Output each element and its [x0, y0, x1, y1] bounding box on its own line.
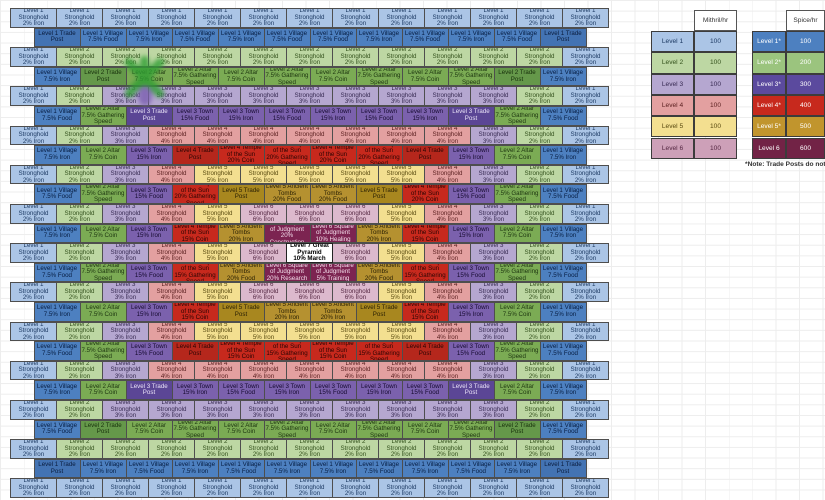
cell-sh4[interactable]: Level 4 Stronghold4% Iron — [378, 126, 425, 146]
cell-sh1[interactable]: Level 1 Stronghold2% Iron — [240, 478, 287, 498]
cell-sh4[interactable]: Level 4 Stronghold4% Iron — [424, 165, 471, 185]
cell-vf[interactable]: Level 1 Village7.5% Food — [540, 106, 587, 126]
cell-tp4[interactable]: Level 4 Trade Post — [172, 145, 219, 165]
cell-vi[interactable]: Level 1 Village7.5% Iron — [540, 302, 587, 322]
cell-sh3[interactable]: Level 3 Stronghold3% Iron — [378, 86, 425, 106]
cell-sh3[interactable]: Level 3 Stronghold3% Iron — [102, 165, 149, 185]
cell-tf[interactable]: Level 3 Town15% Food — [126, 263, 173, 283]
cell-sh2[interactable]: Level 2 Stronghold2% Iron — [516, 322, 563, 342]
cell-ti[interactable]: Level 3 Town15% Iron — [310, 106, 357, 126]
cell-sh3[interactable]: Level 3 Stronghold3% Iron — [470, 282, 517, 302]
legend-value-cell[interactable]: 100 — [694, 74, 737, 95]
cell-sh1[interactable]: Level 1 Stronghold2% Iron — [10, 47, 57, 67]
legend-level-cell[interactable]: Level 1* — [752, 31, 786, 52]
cell-sh1[interactable]: Level 1 Stronghold2% Iron — [516, 8, 563, 28]
cell-tp3[interactable]: Level 3 Trade Post — [126, 106, 173, 126]
cell-sh1[interactable]: Level 1 Stronghold2% Iron — [378, 8, 425, 28]
cell-vf[interactable]: Level 1 Village7.5% Food — [218, 459, 265, 479]
cell-ag[interactable]: Level 2 Altar7.5% Gathering Speed — [356, 420, 403, 440]
legend-level-cell[interactable]: Level 6 — [651, 138, 694, 159]
cell-sh5[interactable]: Level 5 Stronghold5% Iron — [194, 204, 241, 224]
cell-sh2[interactable]: Level 2 Stronghold2% Iron — [516, 47, 563, 67]
cell-sh4[interactable]: Level 4 Stronghold4% Iron — [194, 126, 241, 146]
cell-sh3[interactable]: Level 3 Stronghold3% Iron — [286, 400, 333, 420]
cell-sh2[interactable]: Level 2 Stronghold2% Iron — [194, 47, 241, 67]
cell-tp1[interactable]: Level 1 Trade Post — [34, 459, 81, 479]
cell-sh5[interactable]: Level 5 Stronghold5% Iron — [194, 165, 241, 185]
cell-sh1[interactable]: Level 1 Stronghold2% Iron — [10, 439, 57, 459]
cell-sh2[interactable]: Level 2 Stronghold2% Iron — [516, 400, 563, 420]
cell-sh4[interactable]: Level 4 Stronghold4% Iron — [424, 204, 471, 224]
cell-tof[interactable]: Level 5 Ancient Tombs20% Food — [264, 184, 311, 204]
cell-sh3[interactable]: Level 3 Stronghold3% Iron — [470, 322, 517, 342]
cell-ti[interactable]: Level 3 Town15% Iron — [126, 224, 173, 244]
cell-sh4[interactable]: Level 4 Stronghold4% Iron — [194, 361, 241, 381]
cell-ac[interactable]: Level 2 Altar7.5% Coin — [494, 302, 541, 322]
cell-sh1[interactable]: Level 1 Stronghold2% Iron — [562, 204, 609, 224]
cell-sh4[interactable]: Level 4 Stronghold4% Iron — [240, 126, 287, 146]
cell-vf[interactable]: Level 1 Village7.5% Food — [540, 341, 587, 361]
cell-sh4[interactable]: Level 4 Stronghold4% Iron — [148, 165, 195, 185]
cell-ag[interactable]: Level 2 Altar7.5% Gathering Speed — [80, 184, 127, 204]
cell-tg20[interactable]: Level 4 Temple of the Sun20% Gathering S… — [356, 145, 403, 165]
cell-tof[interactable]: Level 5 Ancient Tombs20% Food — [310, 184, 357, 204]
cell-sh1[interactable]: Level 1 Stronghold2% Iron — [10, 8, 57, 28]
cell-sh4[interactable]: Level 4 Stronghold4% Iron — [424, 322, 471, 342]
cell-tf[interactable]: Level 3 Town15% Food — [126, 341, 173, 361]
legend-level-cell[interactable]: Level 4* — [752, 95, 786, 116]
cell-sh2[interactable]: Level 2 Stronghold2% Iron — [378, 439, 425, 459]
cell-ag[interactable]: Level 2 Altar7.5% Gathering Speed — [494, 341, 541, 361]
cell-sh5[interactable]: Level 5 Stronghold5% Iron — [332, 165, 379, 185]
cell-vi[interactable]: Level 1 Village7.5% Iron — [540, 224, 587, 244]
cell-vi[interactable]: Level 1 Village7.5% Iron — [126, 28, 173, 48]
cell-ac[interactable]: Level 2 Altar7.5% Coin — [80, 145, 127, 165]
cell-vi[interactable]: Level 1 Village7.5% Iron — [448, 28, 495, 48]
cell-sh2[interactable]: Level 2 Stronghold2% Iron — [286, 439, 333, 459]
cell-sh3[interactable]: Level 3 Stronghold3% Iron — [470, 126, 517, 146]
cell-sh6[interactable]: Level 6 Stronghold6% Iron — [240, 243, 287, 263]
cell-ac[interactable]: Level 2 Altar7.5% Coin — [218, 67, 265, 87]
cell-sh3[interactable]: Level 3 Stronghold3% Iron — [102, 361, 149, 381]
cell-sjc[interactable]: Level 6 Square of Judgment20% Constructi… — [264, 224, 311, 244]
cell-tg20[interactable]: Level 4 Temple of the Sun20% Gathering S… — [264, 145, 311, 165]
cell-vi[interactable]: Level 1 Village7.5% Iron — [34, 380, 81, 400]
cell-vi[interactable]: Level 1 Village7.5% Iron — [34, 67, 81, 87]
cell-sh1[interactable]: Level 1 Stronghold2% Iron — [56, 8, 103, 28]
cell-sh6[interactable]: Level 6 Stronghold6% Iron — [240, 204, 287, 224]
cell-sh1[interactable]: Level 1 Stronghold2% Iron — [10, 400, 57, 420]
cell-sh5[interactable]: Level 5 Stronghold5% Iron — [378, 204, 425, 224]
cell-sh3[interactable]: Level 3 Stronghold3% Iron — [470, 165, 517, 185]
cell-sh6[interactable]: Level 6 Stronghold6% Iron — [332, 204, 379, 224]
cell-ac[interactable]: Level 2 Altar7.5% Coin — [218, 420, 265, 440]
cell-tf[interactable]: Level 3 Town15% Food — [448, 341, 495, 361]
cell-sh5[interactable]: Level 5 Stronghold5% Iron — [286, 165, 333, 185]
cell-sh6[interactable]: Level 6 Stronghold6% Iron — [286, 282, 333, 302]
cell-sh3[interactable]: Level 3 Stronghold3% Iron — [102, 243, 149, 263]
cell-vf[interactable]: Level 1 Village7.5% Food — [34, 106, 81, 126]
cell-sh1[interactable]: Level 1 Stronghold2% Iron — [194, 8, 241, 28]
cell-sh1[interactable]: Level 1 Stronghold2% Iron — [470, 8, 517, 28]
cell-sh2[interactable]: Level 2 Stronghold2% Iron — [56, 322, 103, 342]
cell-tp1[interactable]: Level 1 Trade Post — [540, 459, 587, 479]
cell-sh3[interactable]: Level 3 Stronghold3% Iron — [102, 204, 149, 224]
cell-sh1[interactable]: Level 1 Stronghold2% Iron — [332, 8, 379, 28]
cell-sh1[interactable]: Level 1 Stronghold2% Iron — [286, 8, 333, 28]
cell-sh4[interactable]: Level 4 Stronghold4% Iron — [424, 243, 471, 263]
cell-sh3[interactable]: Level 3 Stronghold3% Iron — [424, 86, 471, 106]
cell-tc20[interactable]: Level 4 Temple of the Sun20% Coin — [402, 184, 449, 204]
cell-ag[interactable]: Level 2 Altar7.5% Gathering Speed — [494, 184, 541, 204]
cell-sh4[interactable]: Level 4 Stronghold4% Iron — [424, 361, 471, 381]
cell-sh2[interactable]: Level 2 Stronghold2% Iron — [424, 439, 471, 459]
cell-sh2[interactable]: Level 2 Stronghold2% Iron — [102, 47, 149, 67]
cell-toi[interactable]: Level 5 Ancient Tombs20% Iron — [218, 224, 265, 244]
cell-sh2[interactable]: Level 2 Stronghold2% Iron — [332, 439, 379, 459]
cell-sh2[interactable]: Level 2 Stronghold2% Iron — [194, 439, 241, 459]
cell-sh2[interactable]: Level 2 Stronghold2% Iron — [240, 47, 287, 67]
cell-sh2[interactable]: Level 2 Stronghold2% Iron — [102, 439, 149, 459]
cell-sh4[interactable]: Level 4 Stronghold4% Iron — [240, 361, 287, 381]
cell-sh1[interactable]: Level 1 Stronghold2% Iron — [562, 322, 609, 342]
cell-toi[interactable]: Level 5 Ancient Tombs20% Iron — [310, 302, 357, 322]
legend-value-cell[interactable]: 100 — [694, 138, 737, 159]
cell-tc15[interactable]: Level 4 Temple of the Sun15% Coin — [402, 224, 449, 244]
legend-level-cell[interactable]: Level 1 — [651, 31, 694, 52]
cell-sh5[interactable]: Level 5 Stronghold5% Iron — [332, 322, 379, 342]
cell-sh1[interactable]: Level 1 Stronghold2% Iron — [10, 322, 57, 342]
cell-sh2[interactable]: Level 2 Stronghold2% Iron — [56, 165, 103, 185]
legend-value-cell[interactable]: 600 — [786, 138, 825, 159]
cell-tc15[interactable]: Level 4 Temple of the Sun15% Coin — [402, 302, 449, 322]
cell-sh1[interactable]: Level 1 Stronghold2% Iron — [102, 478, 149, 498]
cell-sh2[interactable]: Level 2 Stronghold2% Iron — [424, 47, 471, 67]
cell-tg15[interactable]: Level 4 Temple of the Sun15% Gathering S… — [356, 341, 403, 361]
cell-ag[interactable]: Level 2 Altar7.5% Gathering Speed — [356, 67, 403, 87]
cell-sh6[interactable]: Level 6 Stronghold6% Iron — [332, 243, 379, 263]
cell-sh2[interactable]: Level 2 Stronghold2% Iron — [148, 47, 195, 67]
cell-sh2[interactable]: Level 2 Stronghold2% Iron — [516, 243, 563, 263]
cell-ag[interactable]: Level 2 Altar7.5% Gathering Speed — [494, 263, 541, 283]
cell-sh5[interactable]: Level 5 Stronghold5% Iron — [240, 165, 287, 185]
cell-sh6[interactable]: Level 6 Stronghold6% Iron — [286, 204, 333, 224]
cell-sh3[interactable]: Level 3 Stronghold3% Iron — [240, 400, 287, 420]
cell-ac[interactable]: Level 2 Altar7.5% Coin — [126, 420, 173, 440]
cell-tc15[interactable]: Level 4 Temple of the Sun15% Coin — [310, 341, 357, 361]
cell-sh1[interactable]: Level 1 Stronghold2% Iron — [286, 478, 333, 498]
cell-sh2[interactable]: Level 2 Stronghold2% Iron — [516, 282, 563, 302]
cell-sh3[interactable]: Level 3 Stronghold3% Iron — [470, 400, 517, 420]
cell-ti[interactable]: Level 3 Town15% Iron — [448, 224, 495, 244]
legend-level-cell[interactable]: Level 3 — [651, 74, 694, 95]
cell-vf[interactable]: Level 1 Village7.5% Food — [34, 341, 81, 361]
cell-tg15[interactable]: Level 4 Temple of the Sun15% Gathering S… — [172, 263, 219, 283]
cell-sh1[interactable]: Level 1 Stronghold2% Iron — [562, 439, 609, 459]
legend-value-cell[interactable]: 300 — [786, 74, 825, 95]
cell-sh1[interactable]: Level 1 Stronghold2% Iron — [562, 282, 609, 302]
cell-ag[interactable]: Level 2 Altar7.5% Gathering Speed — [494, 106, 541, 126]
cell-sh1[interactable]: Level 1 Stronghold2% Iron — [424, 478, 471, 498]
cell-sh1[interactable]: Level 1 Stronghold2% Iron — [148, 478, 195, 498]
cell-sh1[interactable]: Level 1 Stronghold2% Iron — [10, 282, 57, 302]
cell-tp2[interactable]: Level 2 Trade Post — [494, 67, 541, 87]
cell-sh2[interactable]: Level 2 Stronghold2% Iron — [56, 126, 103, 146]
cell-tp3[interactable]: Level 3 Trade Post — [448, 106, 495, 126]
cell-toi[interactable]: Level 5 Ancient Tombs20% Iron — [356, 224, 403, 244]
cell-vf[interactable]: Level 1 Village7.5% Food — [80, 28, 127, 48]
cell-tg20[interactable]: Level 4 Temple of the Sun20% Gathering S… — [172, 184, 219, 204]
cell-sh5[interactable]: Level 5 Stronghold5% Iron — [240, 322, 287, 342]
cell-sh1[interactable]: Level 1 Stronghold2% Iron — [562, 86, 609, 106]
legend-level-cell[interactable]: Level 4 — [651, 95, 694, 116]
cell-tf[interactable]: Level 3 Town15% Food — [264, 106, 311, 126]
cell-sh4[interactable]: Level 4 Stronghold4% Iron — [286, 126, 333, 146]
cell-vf[interactable]: Level 1 Village7.5% Food — [34, 420, 81, 440]
cell-sh4[interactable]: Level 4 Stronghold4% Iron — [148, 204, 195, 224]
cell-sh1[interactable]: Level 1 Stronghold2% Iron — [10, 165, 57, 185]
cell-tp4[interactable]: Level 4 Trade Post — [402, 341, 449, 361]
cell-tp3[interactable]: Level 3 Trade Post — [126, 380, 173, 400]
cell-ag[interactable]: Level 2 Altar7.5% Gathering Speed — [172, 420, 219, 440]
cell-sh3[interactable]: Level 3 Stronghold3% Iron — [332, 400, 379, 420]
cell-vf[interactable]: Level 1 Village7.5% Food — [34, 263, 81, 283]
cell-sh2[interactable]: Level 2 Stronghold2% Iron — [56, 243, 103, 263]
legend-level-cell[interactable]: Level 2* — [752, 52, 786, 73]
cell-sh3[interactable]: Level 3 Stronghold3% Iron — [470, 86, 517, 106]
cell-sh5[interactable]: Level 5 Stronghold5% Iron — [378, 282, 425, 302]
cell-sh1[interactable]: Level 1 Stronghold2% Iron — [10, 361, 57, 381]
cell-sh6[interactable]: Level 6 Stronghold6% Iron — [332, 282, 379, 302]
legend-level-cell[interactable]: Level 3* — [752, 74, 786, 95]
cell-vi[interactable]: Level 1 Village7.5% Iron — [264, 459, 311, 479]
cell-sh2[interactable]: Level 2 Stronghold2% Iron — [516, 126, 563, 146]
cell-sh5[interactable]: Level 5 Stronghold5% Iron — [194, 243, 241, 263]
cell-vi[interactable]: Level 1 Village7.5% Iron — [540, 380, 587, 400]
cell-ac[interactable]: Level 2 Altar7.5% Coin — [126, 67, 173, 87]
cell-vf[interactable]: Level 1 Village7.5% Food — [264, 28, 311, 48]
cell-sh2[interactable]: Level 2 Stronghold2% Iron — [378, 47, 425, 67]
cell-sh1[interactable]: Level 1 Stronghold2% Iron — [10, 86, 57, 106]
cell-sh3[interactable]: Level 3 Stronghold3% Iron — [332, 86, 379, 106]
cell-sh3[interactable]: Level 3 Stronghold3% Iron — [378, 400, 425, 420]
cell-sh5[interactable]: Level 5 Stronghold5% Iron — [378, 165, 425, 185]
cell-tp5[interactable]: Level 5 Trade Post — [356, 302, 403, 322]
cell-sh2[interactable]: Level 2 Stronghold2% Iron — [332, 47, 379, 67]
cell-sh1[interactable]: Level 1 Stronghold2% Iron — [194, 478, 241, 498]
cell-sh2[interactable]: Level 2 Stronghold2% Iron — [516, 204, 563, 224]
cell-vi[interactable]: Level 1 Village7.5% Iron — [218, 28, 265, 48]
cell-sh3[interactable]: Level 3 Stronghold3% Iron — [102, 126, 149, 146]
cell-sh2[interactable]: Level 2 Stronghold2% Iron — [56, 204, 103, 224]
cell-sh1[interactable]: Level 1 Stronghold2% Iron — [562, 8, 609, 28]
cell-tp2[interactable]: Level 2 Trade Post — [80, 67, 127, 87]
cell-ac[interactable]: Level 2 Altar7.5% Coin — [310, 420, 357, 440]
cell-sh5[interactable]: Level 5 Stronghold5% Iron — [286, 322, 333, 342]
cell-ac[interactable]: Level 2 Altar7.5% Coin — [494, 380, 541, 400]
cell-vi[interactable]: Level 1 Village7.5% Iron — [402, 459, 449, 479]
legend-level-cell[interactable]: Level 5 — [651, 116, 694, 137]
cell-ac[interactable]: Level 2 Altar7.5% Coin — [80, 380, 127, 400]
cell-sh4[interactable]: Level 4 Stronghold4% Iron — [148, 322, 195, 342]
cell-sh5[interactable]: Level 5 Stronghold5% Iron — [194, 282, 241, 302]
cell-toi[interactable]: Level 5 Ancient Tombs20% Iron — [264, 302, 311, 322]
cell-sh4[interactable]: Level 4 Stronghold4% Iron — [332, 126, 379, 146]
cell-sh2[interactable]: Level 2 Stronghold2% Iron — [516, 165, 563, 185]
cell-sh1[interactable]: Level 1 Stronghold2% Iron — [10, 126, 57, 146]
cell-tp2[interactable]: Level 2 Trade Post — [494, 420, 541, 440]
cell-sh2[interactable]: Level 2 Stronghold2% Iron — [516, 86, 563, 106]
cell-sh1[interactable]: Level 1 Stronghold2% Iron — [562, 243, 609, 263]
legend-value-cell[interactable]: 200 — [786, 52, 825, 73]
cell-vi[interactable]: Level 1 Village7.5% Iron — [494, 459, 541, 479]
cell-vf[interactable]: Level 1 Village7.5% Food — [540, 420, 587, 440]
cell-tf[interactable]: Level 3 Town15% Food — [126, 184, 173, 204]
cell-sh1[interactable]: Level 1 Stronghold2% Iron — [240, 8, 287, 28]
cell-sh4[interactable]: Level 4 Stronghold4% Iron — [148, 361, 195, 381]
cell-tp2[interactable]: Level 2 Trade Post — [80, 420, 127, 440]
cell-ag[interactable]: Level 2 Altar7.5% Gathering Speed — [80, 341, 127, 361]
cell-ti[interactable]: Level 3 Town15% Iron — [172, 380, 219, 400]
cell-ac[interactable]: Level 2 Altar7.5% Coin — [402, 67, 449, 87]
cell-tf[interactable]: Level 3 Town15% Food — [448, 263, 495, 283]
cell-sh5[interactable]: Level 5 Stronghold5% Iron — [378, 322, 425, 342]
cell-tp4[interactable]: Level 4 Trade Post — [402, 145, 449, 165]
cell-vi[interactable]: Level 1 Village7.5% Iron — [310, 459, 357, 479]
cell-sh4[interactable]: Level 4 Stronghold4% Iron — [148, 126, 195, 146]
cell-sh3[interactable]: Level 3 Stronghold3% Iron — [102, 400, 149, 420]
cell-tp1[interactable]: Level 1 Trade Post — [34, 28, 81, 48]
cell-vf[interactable]: Level 1 Village7.5% Food — [356, 459, 403, 479]
cell-sh3[interactable]: Level 3 Stronghold3% Iron — [240, 86, 287, 106]
legend-value-cell[interactable]: 100 — [694, 116, 737, 137]
cell-sh1[interactable]: Level 1 Stronghold2% Iron — [10, 204, 57, 224]
cell-sh5[interactable]: Level 5 Stronghold5% Iron — [194, 322, 241, 342]
cell-vi[interactable]: Level 1 Village7.5% Iron — [540, 67, 587, 87]
cell-vf[interactable]: Level 1 Village7.5% Food — [172, 28, 219, 48]
cell-tp3[interactable]: Level 3 Trade Post — [448, 380, 495, 400]
cell-sh3[interactable]: Level 3 Stronghold3% Iron — [194, 400, 241, 420]
cell-tf[interactable]: Level 3 Town15% Food — [218, 380, 265, 400]
cell-vf[interactable]: Level 1 Village7.5% Food — [402, 28, 449, 48]
cell-vi[interactable]: Level 1 Village7.5% Iron — [34, 145, 81, 165]
cell-tf[interactable]: Level 3 Town15% Food — [402, 380, 449, 400]
cell-vi[interactable]: Level 1 Village7.5% Iron — [172, 459, 219, 479]
cell-ag[interactable]: Level 2 Altar7.5% Gathering Speed — [172, 67, 219, 87]
cell-tf[interactable]: Level 3 Town15% Food — [448, 184, 495, 204]
cell-sh1[interactable]: Level 1 Stronghold2% Iron — [148, 8, 195, 28]
cell-sh3[interactable]: Level 3 Stronghold3% Iron — [470, 204, 517, 224]
cell-sh2[interactable]: Level 2 Stronghold2% Iron — [56, 361, 103, 381]
cell-tc20[interactable]: Level 4 Temple of the Sun20% Coin — [218, 145, 265, 165]
legend-value-cell[interactable]: 100 — [786, 31, 825, 52]
cell-tof[interactable]: Level 5 Ancient Tombs20% Food — [218, 263, 265, 283]
cell-sh2[interactable]: Level 2 Stronghold2% Iron — [470, 439, 517, 459]
cell-ti[interactable]: Level 3 Town15% Iron — [126, 302, 173, 322]
cell-ag[interactable]: Level 2 Altar7.5% Gathering Speed — [264, 67, 311, 87]
cell-sh1[interactable]: Level 1 Stronghold2% Iron — [562, 126, 609, 146]
cell-sh4[interactable]: Level 4 Stronghold4% Iron — [424, 126, 471, 146]
cell-vi[interactable]: Level 1 Village7.5% Iron — [34, 224, 81, 244]
cell-sh1[interactable]: Level 1 Stronghold2% Iron — [516, 478, 563, 498]
legend-level-cell[interactable]: Level 2 — [651, 52, 694, 73]
cell-ti[interactable]: Level 3 Town15% Iron — [448, 145, 495, 165]
cell-ac[interactable]: Level 2 Altar7.5% Coin — [310, 67, 357, 87]
cell-sh4[interactable]: Level 4 Stronghold4% Iron — [424, 282, 471, 302]
cell-vi[interactable]: Level 1 Village7.5% Iron — [80, 459, 127, 479]
cell-ac[interactable]: Level 2 Altar7.5% Coin — [494, 145, 541, 165]
cell-sh2[interactable]: Level 2 Stronghold2% Iron — [56, 439, 103, 459]
cell-sh3[interactable]: Level 3 Stronghold3% Iron — [470, 361, 517, 381]
cell-ac[interactable]: Level 2 Altar7.5% Coin — [494, 224, 541, 244]
cell-ag[interactable]: Level 2 Altar7.5% Gathering Speed — [264, 420, 311, 440]
cell-ti[interactable]: Level 3 Town15% Iron — [126, 145, 173, 165]
cell-vi[interactable]: Level 1 Village7.5% Iron — [540, 145, 587, 165]
cell-tp4[interactable]: Level 4 Trade Post — [172, 341, 219, 361]
cell-sh2[interactable]: Level 2 Stronghold2% Iron — [240, 439, 287, 459]
cell-sh1[interactable]: Level 1 Stronghold2% Iron — [378, 478, 425, 498]
cell-ag[interactable]: Level 2 Altar7.5% Gathering Speed — [80, 263, 127, 283]
legend-value-cell[interactable]: 400 — [786, 95, 825, 116]
cell-vf[interactable]: Level 1 Village7.5% Food — [448, 459, 495, 479]
cell-tp5[interactable]: Level 5 Trade Post — [218, 302, 265, 322]
cell-sh2[interactable]: Level 2 Stronghold2% Iron — [56, 47, 103, 67]
cell-tf[interactable]: Level 3 Town15% Food — [356, 106, 403, 126]
legend-value-cell[interactable]: 500 — [786, 116, 825, 137]
legend-value-cell[interactable]: 100 — [694, 52, 737, 73]
cell-sjr[interactable]: Level 6 Square of Judgment20% Research — [264, 263, 311, 283]
cell-ti[interactable]: Level 3 Town15% Iron — [356, 380, 403, 400]
legend-level-cell[interactable]: Level 6 — [752, 138, 786, 159]
cell-vf[interactable]: Level 1 Village7.5% Food — [540, 263, 587, 283]
legend-value-cell[interactable]: 100 — [694, 95, 737, 116]
cell-sh3[interactable]: Level 3 Stronghold3% Iron — [102, 86, 149, 106]
cell-sh2[interactable]: Level 2 Stronghold2% Iron — [286, 47, 333, 67]
cell-sh3[interactable]: Level 3 Stronghold3% Iron — [102, 282, 149, 302]
cell-sh6[interactable]: Level 6 Stronghold6% Iron — [240, 282, 287, 302]
cell-sh2[interactable]: Level 2 Stronghold2% Iron — [56, 86, 103, 106]
cell-sh3[interactable]: Level 3 Stronghold3% Iron — [194, 86, 241, 106]
cell-sh1[interactable]: Level 1 Stronghold2% Iron — [562, 47, 609, 67]
cell-ag[interactable]: Level 2 Altar7.5% Gathering Speed — [448, 67, 495, 87]
cell-vf[interactable]: Level 1 Village7.5% Food — [126, 459, 173, 479]
cell-sh4[interactable]: Level 4 Stronghold4% Iron — [286, 361, 333, 381]
legend-level-cell[interactable]: Level 5* — [752, 116, 786, 137]
cell-sh1[interactable]: Level 1 Stronghold2% Iron — [424, 8, 471, 28]
cell-sjh[interactable]: Level 6 Square of Judgment10% Healing — [310, 224, 357, 244]
cell-tp1[interactable]: Level 1 Trade Post — [540, 28, 587, 48]
cell-sh3[interactable]: Level 3 Stronghold3% Iron — [148, 400, 195, 420]
cell-pyr[interactable]: Level 7 Great Pyramid10% March — [286, 243, 333, 263]
cell-sh4[interactable]: Level 4 Stronghold4% Iron — [148, 243, 195, 263]
cell-sh2[interactable]: Level 2 Stronghold2% Iron — [56, 400, 103, 420]
cell-sh5[interactable]: Level 5 Stronghold5% Iron — [378, 243, 425, 263]
cell-vi[interactable]: Level 1 Village7.5% Iron — [356, 28, 403, 48]
cell-tp5[interactable]: Level 5 Trade Post — [218, 184, 265, 204]
cell-vf[interactable]: Level 1 Village7.5% Food — [494, 28, 541, 48]
cell-ti[interactable]: Level 3 Town15% Iron — [264, 380, 311, 400]
cell-tf[interactable]: Level 3 Town15% Food — [310, 380, 357, 400]
cell-vf[interactable]: Level 1 Village7.5% Food — [34, 184, 81, 204]
cell-vi[interactable]: Level 1 Village7.5% Iron — [34, 302, 81, 322]
cell-sh1[interactable]: Level 1 Stronghold2% Iron — [562, 361, 609, 381]
cell-sh3[interactable]: Level 3 Stronghold3% Iron — [470, 243, 517, 263]
cell-sh3[interactable]: Level 3 Stronghold3% Iron — [424, 400, 471, 420]
cell-sh1[interactable]: Level 1 Stronghold2% Iron — [10, 243, 57, 263]
cell-sh1[interactable]: Level 1 Stronghold2% Iron — [562, 478, 609, 498]
cell-vf[interactable]: Level 1 Village7.5% Food — [540, 184, 587, 204]
cell-ti[interactable]: Level 3 Town15% Iron — [402, 106, 449, 126]
